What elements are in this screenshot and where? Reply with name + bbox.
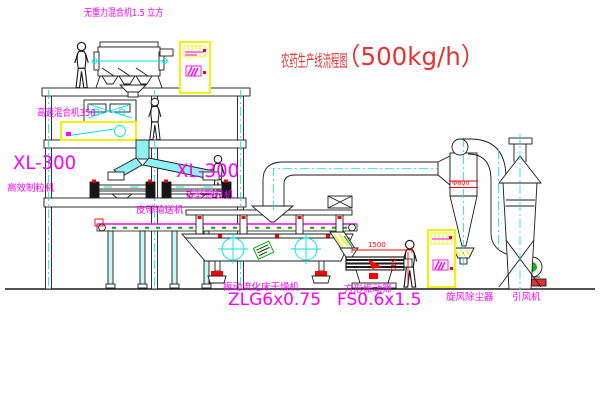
belt-end-support <box>328 196 352 208</box>
label-belt-conveyor: 皮带输送机 <box>136 206 184 216</box>
label-granulator-right-model: XL-300 <box>176 162 239 181</box>
label-granulator-right-name: 旋转制粒机 <box>186 191 234 201</box>
square-vibrating-sieve <box>346 247 412 288</box>
dimension-sieve-height: 540 <box>389 258 396 271</box>
dryer-feet <box>208 261 330 283</box>
dimension-sieve-length: 1500 <box>368 242 386 249</box>
control-cabinet-ground <box>428 230 455 287</box>
cad-flowsheet: 农药生产线流程图 （500kg/h） 无重力混合机1.5 立方 高速混合机350… <box>0 0 600 403</box>
granulator-left <box>90 180 155 199</box>
control-cabinet-top <box>180 42 210 93</box>
worker-figure-top-floor <box>75 42 89 87</box>
label-fan: 引风机 <box>512 293 541 303</box>
label-granulator-left-name: 高效制粒机 <box>7 184 55 194</box>
diagram-title-capacity: （500kg/h） <box>336 44 485 69</box>
dimension-cyclone-diameter: Φ800 <box>452 180 470 187</box>
label-cyclone: 旋风除尘器 <box>446 293 494 303</box>
label-square-sieve-model: FS0.6x1.5 <box>337 292 421 309</box>
label-fluid-bed-dryer-model: ZLG6x0.75 <box>228 292 321 309</box>
label-granulator-left-model: XL-300 <box>13 154 76 173</box>
label-high-speed-mixer: 高速混合机350 <box>37 109 96 119</box>
label-gravity-free-mixer: 无重力混合机1.5 立方 <box>84 9 163 19</box>
high-speed-mixer <box>61 100 136 140</box>
